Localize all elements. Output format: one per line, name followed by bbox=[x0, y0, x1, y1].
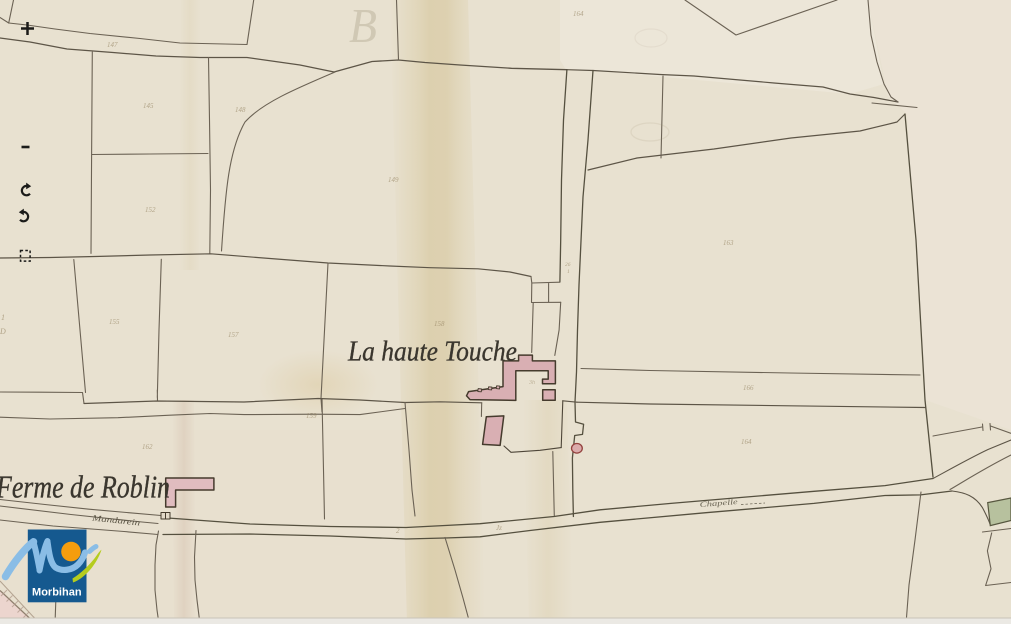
svg-text:148: 148 bbox=[235, 106, 246, 114]
svg-text:Ferme de Roblin: Ferme de Roblin bbox=[0, 469, 170, 505]
svg-text:166: 166 bbox=[743, 384, 754, 392]
svg-text:Morbihan: Morbihan bbox=[32, 587, 82, 599]
svg-text:158: 158 bbox=[434, 320, 445, 328]
svg-text:149: 149 bbox=[388, 176, 399, 184]
svg-text:147: 147 bbox=[107, 41, 118, 49]
svg-text:164: 164 bbox=[741, 438, 752, 446]
svg-text:162: 162 bbox=[142, 443, 153, 451]
svg-text:163: 163 bbox=[723, 239, 734, 247]
svg-text:164: 164 bbox=[573, 10, 584, 18]
svg-text:1: 1 bbox=[567, 269, 570, 275]
svg-text:152: 152 bbox=[145, 206, 156, 214]
svg-text:155: 155 bbox=[109, 318, 120, 326]
svg-text:159: 159 bbox=[306, 412, 317, 420]
svg-text:B: B bbox=[349, 0, 377, 53]
svg-text:157: 157 bbox=[228, 331, 239, 339]
svg-text:26: 26 bbox=[565, 262, 571, 268]
svg-text:145: 145 bbox=[143, 102, 154, 110]
svg-text:D: D bbox=[0, 327, 6, 336]
svg-text:2: 2 bbox=[396, 527, 400, 535]
svg-text:3h: 3h bbox=[528, 380, 535, 386]
svg-text:La haute Touche: La haute Touche bbox=[347, 336, 517, 368]
svg-text:Jz: Jz bbox=[496, 524, 502, 532]
svg-text:1: 1 bbox=[1, 313, 5, 322]
